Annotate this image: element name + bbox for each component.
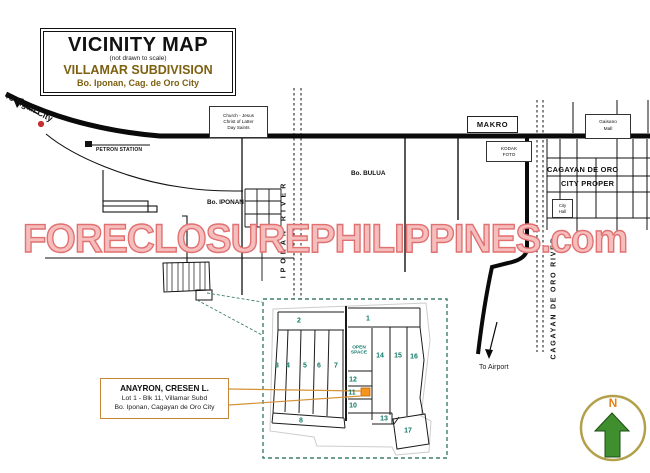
inset-lot-17: 17 <box>404 428 412 435</box>
landmark-church: Church - Jesus Christ of Latter Day Sain… <box>209 106 268 138</box>
area-label-city-proper-line2: CITY PROPER <box>561 179 614 188</box>
inset-connector-lines <box>197 293 262 335</box>
inset-lot-1: 1 <box>366 316 370 323</box>
national-highway-road <box>6 94 650 136</box>
landmark-kodak: KODAK FOTO <box>486 141 532 162</box>
area-label-bo-bulua: Bo. BULUA <box>351 170 385 177</box>
landmark-makro: MAKRO <box>467 116 518 133</box>
owner-name: ANAYRON, CRESEN L. <box>101 385 228 394</box>
area-label-city-proper-line1: CAGAYAN DE ORO <box>547 165 618 174</box>
inset-lot-16: 16 <box>410 354 418 361</box>
inset-open-space-label: OPEN SPACE <box>351 346 367 357</box>
owner-callout-box: ANAYRON, CRESEN L. Lot 1 - Blk 11, Villa… <box>100 378 229 419</box>
map-title: VICINITY MAP <box>44 35 232 55</box>
landmark-city-hall: City Hall <box>552 199 573 218</box>
watermark-text: FORECLOSUREPHILIPPINES.com <box>10 217 641 262</box>
inset-lot-15: 15 <box>394 353 402 360</box>
subdivision-location: Bo. Iponan, Cag. de Oro City <box>44 79 232 89</box>
area-label-bo-iponan: Bo. IPONAN <box>207 199 244 206</box>
compass-north-letter: N <box>609 396 618 410</box>
landmark-gaisano-mall: Gaisano Mall <box>585 114 631 139</box>
subdivision-parcel <box>163 262 212 300</box>
vicinity-map-page: VICINITY MAP (not drawn to scale) VILLAM… <box>0 0 650 473</box>
road-label-to-airport: To Airport <box>479 364 509 371</box>
inset-lot-6: 6 <box>317 363 321 370</box>
inset-lot-7: 7 <box>334 363 338 370</box>
inset-lot-2: 2 <box>297 318 301 325</box>
map-subtitle: (not drawn to scale) <box>44 56 232 63</box>
inset-lot-11: 11 <box>348 390 355 397</box>
map-title-box: VICINITY MAP (not drawn to scale) VILLAM… <box>40 28 236 96</box>
inset-lot-10: 10 <box>349 403 357 410</box>
inset-lot-14: 14 <box>376 353 384 360</box>
location-marker-dot <box>38 121 44 127</box>
inset-lot-12: 12 <box>349 377 357 384</box>
inset-lot-4: 4 <box>286 363 290 370</box>
inset-lot-13: 13 <box>380 416 388 423</box>
lot-block-info: Lot 1 - Blk 11, Villamar Subd <box>101 395 228 403</box>
landmark-petron-station-label: PETRON STATION <box>96 147 142 153</box>
inset-lot-5: 5 <box>303 363 307 370</box>
subdivision-name: VILLAMAR SUBDIVISION <box>44 64 232 78</box>
inset-lot-3: 3 <box>275 363 279 370</box>
highlighted-lot-11 <box>361 388 370 396</box>
lot-address: Bo. Iponan, Cagayan de Oro City <box>101 404 228 412</box>
inset-lot-8: 8 <box>299 418 303 425</box>
iponan-side-roads <box>45 134 458 295</box>
iponan-river-lines <box>294 88 301 305</box>
